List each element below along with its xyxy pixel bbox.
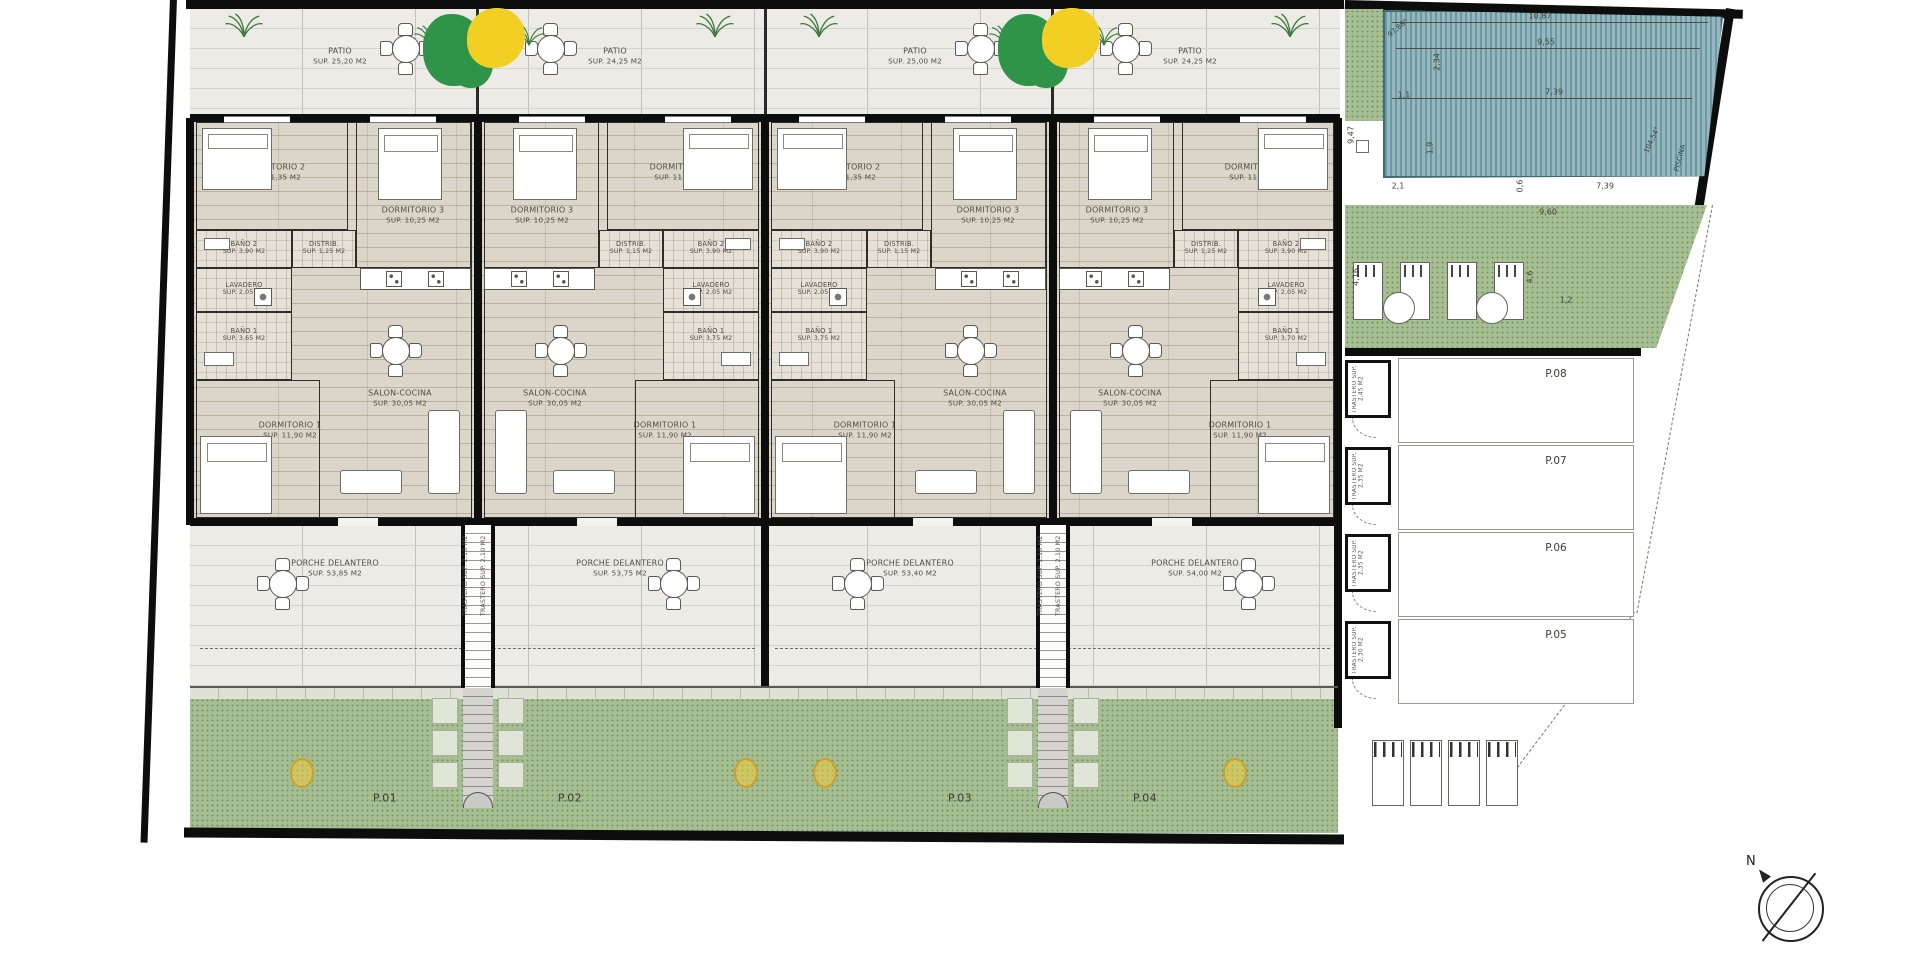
chair-icon [1262,576,1275,591]
palm-plant-icon [1270,14,1310,38]
room-label-patio-P.04: PATIOSUP. 24,25 M2 [1163,47,1217,66]
bed-icon [683,128,753,190]
room-bano1-P.02 [663,312,759,380]
table-icon [382,337,410,365]
dim-label: 7,39 [1545,88,1563,97]
room-label-dorm3-P.03: DORMITORIO 3SUP. 10,25 M2 [957,206,1020,225]
chair-icon [687,576,700,591]
plot-label-P.02: P.02 [558,792,582,805]
washbasin-icon [204,238,230,250]
trastero-door-arc [1352,592,1376,612]
dim-label: 7,39 [1596,182,1614,191]
garden-planter [498,730,524,756]
washbasin-icon [1300,238,1326,250]
entry-stairs-1 [463,688,493,806]
chair-icon [543,62,558,75]
pool-dim-line-2 [1396,48,1700,49]
compass-arrow-icon [1755,866,1771,882]
garden-planter [1073,762,1099,788]
tree-yellow-canopy [1042,8,1100,68]
parking-bay-P.06 [1398,532,1634,617]
garden-shrub-icon [290,758,314,788]
parking-top-wall [1345,348,1641,356]
bed-icon [775,436,847,514]
rear-window [799,116,865,123]
room-label-patio-P.02: PATIOSUP. 24,25 M2 [588,47,642,66]
washbasin-icon [725,238,751,250]
porch-table-icon [1224,559,1272,607]
room-bano1-P.01 [196,312,292,380]
garden-planter [1007,762,1033,788]
sofa-icon [915,470,977,494]
washer-icon [829,288,847,306]
lawn-table-icon [1476,292,1508,324]
garden-planter [498,698,524,724]
stove-icon [1128,271,1144,287]
sink-icon [428,271,444,287]
north-compass: N [1752,862,1830,948]
trastero-door-arc [1352,418,1376,438]
table-icon [269,570,297,598]
dim-label: 1,9 [1426,142,1435,155]
washer-icon [1258,288,1276,306]
sink-icon [1003,271,1019,287]
rear-window [1240,116,1306,123]
room-bano1-P.04 [1238,312,1334,380]
trastero-door-arc [1352,679,1376,699]
chair-icon [1139,41,1152,56]
pool-side-green [1345,9,1383,121]
room-label-salon-P.01: SALON-COCINASUP. 30,05 M2 [368,389,432,408]
trastero-room-label-P.08: TRASTERO SUP. 2,45 M2 [1352,363,1384,415]
plot-label-P.03: P.03 [948,792,972,805]
parking-bay-P.05 [1398,619,1634,704]
sink-icon [511,271,527,287]
trastero-room-label-P.05: TRASTERO SUP. 2,30 M2 [1352,624,1384,676]
chair-icon [1118,62,1133,75]
lawn-table-icon [1383,292,1415,324]
porch-table-icon [258,559,306,607]
room-label-distrib-P.02: DISTRIB.SUP. 1,15 M2 [610,240,653,256]
rear-window [519,116,585,123]
room-label-salon-P.02: SALON-COCINASUP. 30,05 M2 [523,389,587,408]
garden-planter [1007,730,1033,756]
chair-icon [1128,364,1143,377]
sofa-icon [553,470,615,494]
rear-window [224,116,290,123]
porch-table-icon [649,559,697,607]
garden-planter [498,762,524,788]
dim-label: 1,2 [1560,296,1573,305]
table-icon [1122,337,1150,365]
chair-icon [984,343,997,358]
room-bano1-P.03 [771,312,867,380]
rear-window [370,116,436,123]
entry-stairs-2 [1038,688,1068,806]
bed-icon [1258,128,1328,190]
palm-plant-icon [799,14,839,38]
palm-plant-icon [224,14,264,38]
dim-label: 9,47 [1347,126,1356,144]
garden-planter [432,698,458,724]
kitchen-counter [360,268,471,290]
parking-bay-label-P.06: P.06 [1545,542,1566,554]
porch-pergola-edge [1063,648,1330,649]
washer-icon [254,288,272,306]
table-icon [957,337,985,365]
parking-stall-icon [1372,740,1404,806]
chair-icon [409,343,422,358]
bed-icon [513,128,577,200]
plot-label-P.04: P.04 [1133,792,1157,805]
trastero-label-1-1: TRASTERO SUP. 2,10 M2 [463,530,475,622]
sun-lounger-icon [1447,262,1477,320]
garden-shrub-icon [734,758,758,788]
pool-equipment-box [1356,140,1369,153]
rear-window [1094,116,1160,123]
chair-icon [388,364,403,377]
room-label-dorm3-P.01: DORMITORIO 3SUP. 10,25 M2 [382,206,445,225]
sofa-icon [1003,410,1035,494]
room-label-salon-P.03: SALON-COCINASUP. 30,05 M2 [943,389,1007,408]
porch-pergola-edge [488,648,755,649]
chair-icon [1149,343,1162,358]
garden-planter [1073,698,1099,724]
room-label-dorm3-P.02: DORMITORIO 3SUP. 10,25 M2 [511,206,574,225]
bed-icon [378,128,442,200]
tree-icon [998,8,1108,100]
kitchen-counter [484,268,595,290]
plot-label-P.01: P.01 [373,792,397,805]
sofa-icon [340,470,402,494]
dim-label: 2,1 [1392,182,1405,191]
parking-bay-P.08 [1398,358,1634,443]
trastero-door-arc [1352,505,1376,525]
room-label-patio-P.03: PATIOSUP. 25,00 M2 [888,47,942,66]
dining-table-icon [1111,326,1159,374]
chair-icon [666,597,681,610]
porch-pergola-edge [775,648,1042,649]
bed-icon [683,436,755,514]
west-site-boundary [141,0,177,843]
compass-inner-circle [1766,884,1814,932]
room-label-bano1-P.02: BAÑO 1SUP. 3,75 M2 [690,327,733,343]
bed-icon [200,436,272,514]
chair-icon [1241,597,1256,610]
room-label-salon-P.04: SALON-COCINASUP. 30,05 M2 [1098,389,1162,408]
porch-table-icon [833,559,881,607]
party-wall-shaft-1 [474,118,482,525]
dim-label: 4,6 [1526,271,1535,284]
chair-icon [574,343,587,358]
tree-yellow-canopy [467,8,525,68]
toilet-icon [1296,352,1326,366]
dim-label: 1,1 [1398,91,1411,100]
dim-label: 2,34 [1433,53,1442,71]
dining-table-icon [371,326,419,374]
bed-icon [202,128,272,190]
toilet-icon [204,352,234,366]
rear-window [665,116,731,123]
chair-icon [963,364,978,377]
room-label-bano1-P.03: BAÑO 1SUP. 3,75 M2 [798,327,841,343]
porch-pergola-edge [200,648,467,649]
washbasin-icon [779,238,805,250]
bed-icon [1088,128,1152,200]
bed-icon [1258,436,1330,514]
sofa-icon [495,410,527,494]
parking-bay-P.07 [1398,445,1634,530]
kitchen-counter [935,268,1046,290]
dining-table-icon [536,326,584,374]
chair-icon [973,62,988,75]
stove-icon [553,271,569,287]
porch-door-gap [338,518,378,526]
dim-label: 9,55 [1537,38,1555,47]
trastero-label-1-2: TRASTERO SUP. 2,10 M2 [481,530,493,622]
chair-icon [398,62,413,75]
room-label-distrib-P.04: DISTRIB.SUP. 1,25 M2 [1185,240,1228,256]
trastero-label-2-1: TRASTERO SUP. 2,10 M2 [1038,530,1050,622]
room-label-bano1-P.04: BAÑO 1SUP. 3,70 M2 [1265,327,1308,343]
rear-window [945,116,1011,123]
table-icon [1235,570,1263,598]
chair-icon [553,364,568,377]
sink-icon [1086,271,1102,287]
palm-plant-icon [695,14,735,38]
chair-icon [275,597,290,610]
chair-icon [850,597,865,610]
trastero-label-2-2: TRASTERO SUP. 2,10 M2 [1056,530,1068,622]
parking-stall-icon [1486,740,1518,806]
room-label-dorm3-P.04: DORMITORIO 3SUP. 10,25 M2 [1086,206,1149,225]
compass-north-label: N [1746,854,1756,869]
bed-icon [953,128,1017,200]
pool-dim-line-1 [1392,22,1708,23]
parking-bay-label-P.05: P.05 [1545,629,1566,641]
parking-stall-icon [1448,740,1480,806]
porch-door-gap [1152,518,1192,526]
dim-label: 0,6 [1516,180,1525,193]
tree-icon [423,8,533,100]
dim-label: 4,16 [1352,268,1361,286]
dining-table-icon [946,326,994,374]
parking-stall-icon [1410,740,1442,806]
kitchen-counter [1059,268,1170,290]
bed-icon [777,128,847,190]
room-label-distrib-P.01: DISTRIB.SUP. 1,25 M2 [303,240,346,256]
trastero-room-label-P.06: TRASTERO SUP. 2,35 M2 [1352,537,1384,589]
garden-planter [432,762,458,788]
sofa-icon [428,410,460,494]
site-plan-canvas: DORMITORIO 2SUP. 11,35 M2DORMITORIO 3SUP… [0,0,1920,980]
garden-shrub-icon [1223,758,1247,788]
parking-bay-label-P.07: P.07 [1545,455,1566,467]
table-icon [844,570,872,598]
garden-planter [1007,698,1033,724]
pool-dim-line-3 [1392,98,1692,99]
dim-label: 10,87 [1529,12,1552,21]
chair-icon [296,576,309,591]
chair-icon [564,41,577,56]
chair-icon [871,576,884,591]
porch-door-gap [913,518,953,526]
room-label-distrib-P.03: DISTRIB.SUP. 1,15 M2 [878,240,921,256]
table-icon [547,337,575,365]
dim-label: 9,60 [1539,208,1557,217]
trastero-room-label-P.07: TRASTERO SUP. 2,35 M2 [1352,450,1384,502]
room-label-patio-P.01: PATIOSUP. 25,20 M2 [313,47,367,66]
party-wall-shaft-2 [1049,118,1057,525]
sofa-icon [1128,470,1190,494]
garden-planter [432,730,458,756]
parking-bay-label-P.08: P.08 [1545,368,1566,380]
toilet-icon [779,352,809,366]
garden-shrub-icon [813,758,837,788]
garden-planter [1073,730,1099,756]
porch-door-gap [577,518,617,526]
toilet-icon [721,352,751,366]
stove-icon [386,271,402,287]
stove-icon [961,271,977,287]
room-label-bano1-P.01: BAÑO 1SUP. 3,65 M2 [223,327,266,343]
sofa-icon [1070,410,1102,494]
washer-icon [683,288,701,306]
table-icon [660,570,688,598]
